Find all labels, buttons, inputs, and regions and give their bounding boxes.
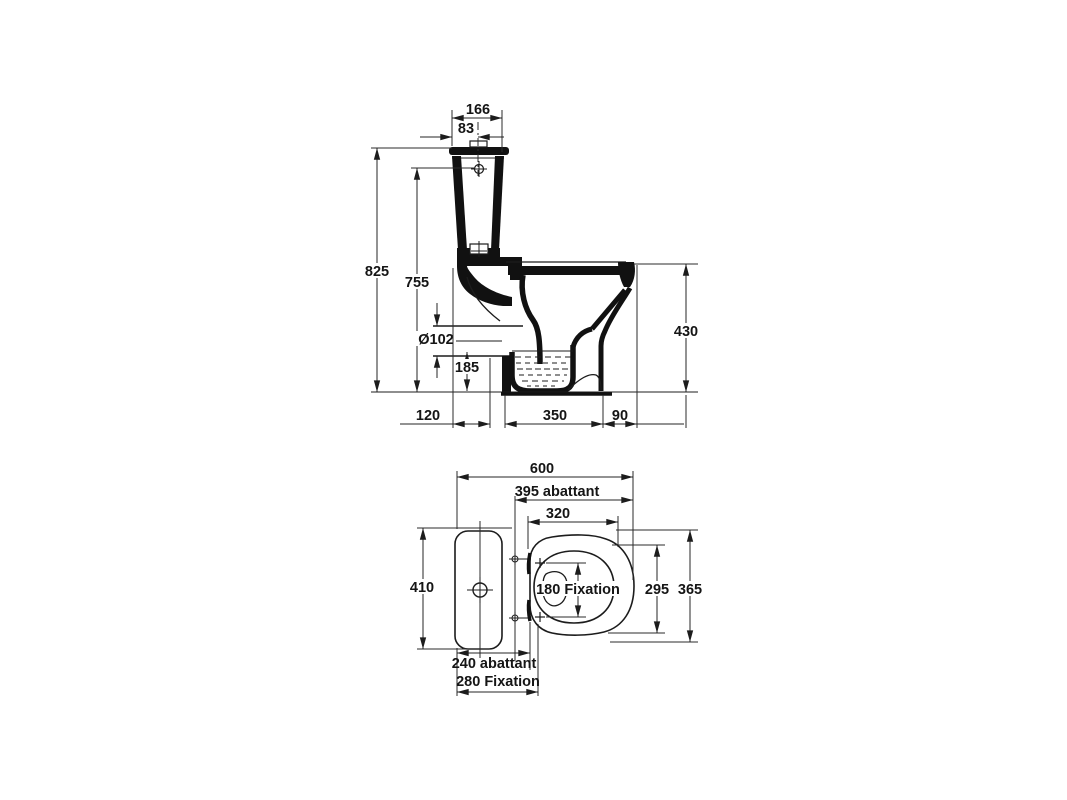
- inlet-hole-mark: [471, 161, 487, 177]
- front-rim-lip: [618, 262, 635, 287]
- dim-opening-depth: 320: [546, 506, 570, 522]
- dim-rear-to-outlet: 120: [416, 408, 440, 424]
- dim-tank-depth: 166: [466, 102, 490, 118]
- dim-total-height: 825: [365, 264, 389, 280]
- cistern-lid: [449, 147, 509, 155]
- dim-tank-width: 410: [410, 580, 434, 596]
- hinge-bumper-top: [528, 553, 530, 574]
- drawing-canvas: 166 83 825 755 Ø102 185: [0, 0, 1067, 800]
- dim-inlet-height: 755: [405, 275, 429, 291]
- side-elevation: 166 83 825 755 Ø102 185: [361, 102, 703, 428]
- dim-outlet-axis-height: 185: [455, 360, 479, 376]
- side-dimensions: 166 83 825 755 Ø102 185: [361, 102, 703, 428]
- plan-view: 600 395 abattant 320 410 180 Fixation: [405, 461, 707, 696]
- hinge-hole-marks: [509, 553, 528, 624]
- rim-section: [508, 266, 626, 275]
- cistern-plan: [455, 521, 502, 658]
- technical-drawing: 166 83 825 755 Ø102 185: [0, 0, 1067, 800]
- dim-overall-width: 365: [678, 582, 702, 598]
- dim-seat-hinge-width: 240 abattant: [452, 656, 537, 672]
- cistern-center-mark: [467, 577, 493, 603]
- dim-total-depth: 600: [530, 461, 554, 477]
- dim-outlet-to-front: 350: [543, 408, 567, 424]
- dim-fixation-spacing: 180 Fixation: [536, 582, 620, 598]
- dim-tank-center-offset: 83: [458, 121, 474, 137]
- plan-dimensions: 600 395 abattant 320 410 180 Fixation: [405, 461, 707, 696]
- cistern-wall-front: [452, 156, 467, 250]
- dim-bowl-height: 430: [674, 324, 698, 340]
- cistern-section: [449, 122, 509, 258]
- dim-opening-width: 295: [645, 582, 669, 598]
- dim-front-lip: 90: [612, 408, 628, 424]
- dim-fixation-width: 280 Fixation: [456, 674, 540, 690]
- dim-outlet-diameter: Ø102: [418, 332, 453, 348]
- hinge-bumper-bottom: [528, 600, 530, 621]
- cistern-wall-back: [491, 156, 504, 250]
- flush-channel: [457, 266, 512, 306]
- dim-seat-depth: 395 abattant: [515, 484, 600, 500]
